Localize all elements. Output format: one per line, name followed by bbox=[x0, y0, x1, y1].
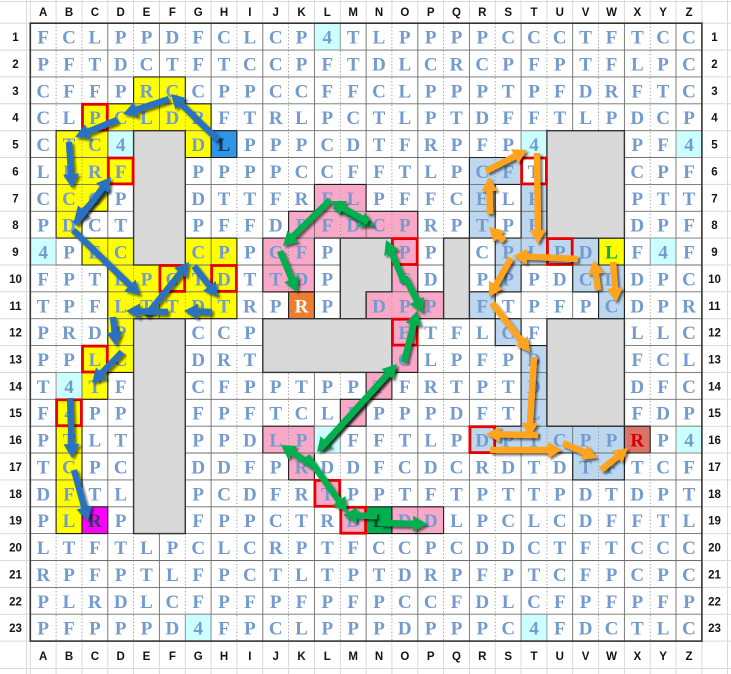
svg-text:P: P bbox=[37, 216, 49, 237]
svg-text:D: D bbox=[630, 108, 644, 129]
svg-text:P: P bbox=[244, 243, 256, 264]
svg-text:T: T bbox=[398, 484, 411, 505]
svg-text:D: D bbox=[269, 216, 283, 237]
svg-text:C: C bbox=[605, 619, 619, 640]
svg-text:F: F bbox=[657, 135, 669, 156]
svg-text:P: P bbox=[502, 216, 514, 237]
svg-text:1: 1 bbox=[12, 32, 19, 44]
svg-text:F: F bbox=[192, 404, 204, 425]
svg-text:L: L bbox=[502, 592, 515, 613]
svg-text:P: P bbox=[373, 404, 385, 425]
svg-text:F: F bbox=[218, 619, 230, 640]
svg-text:L: L bbox=[631, 323, 644, 344]
svg-text:T: T bbox=[114, 538, 127, 559]
svg-text:T: T bbox=[502, 404, 515, 425]
svg-text:C: C bbox=[656, 458, 670, 479]
svg-text:N: N bbox=[375, 7, 383, 19]
svg-text:4: 4 bbox=[684, 135, 694, 156]
svg-text:T: T bbox=[114, 216, 127, 237]
svg-text:J: J bbox=[272, 651, 278, 663]
svg-text:P: P bbox=[115, 189, 127, 210]
svg-text:T: T bbox=[166, 296, 179, 317]
svg-text:F: F bbox=[218, 377, 230, 398]
svg-text:T: T bbox=[89, 269, 102, 290]
svg-text:D: D bbox=[166, 28, 180, 49]
svg-text:R: R bbox=[424, 216, 438, 237]
svg-text:L: L bbox=[295, 108, 308, 129]
svg-text:C: C bbox=[527, 538, 541, 559]
svg-text:P: P bbox=[63, 269, 75, 290]
svg-text:L: L bbox=[398, 81, 411, 102]
svg-text:D: D bbox=[630, 377, 644, 398]
svg-text:F: F bbox=[502, 108, 514, 129]
svg-text:D: D bbox=[656, 404, 670, 425]
svg-text:P: P bbox=[631, 189, 643, 210]
svg-text:5: 5 bbox=[711, 140, 718, 152]
svg-text:P: P bbox=[115, 565, 127, 586]
svg-text:10: 10 bbox=[9, 274, 22, 286]
svg-text:F: F bbox=[89, 538, 101, 559]
svg-text:T: T bbox=[244, 350, 257, 371]
svg-text:D: D bbox=[88, 323, 102, 344]
svg-text:H: H bbox=[220, 7, 228, 19]
svg-text:L: L bbox=[398, 55, 411, 76]
svg-text:L: L bbox=[424, 350, 437, 371]
svg-text:A: A bbox=[39, 651, 47, 663]
svg-text:P: P bbox=[321, 619, 333, 640]
svg-text:P: P bbox=[427, 7, 435, 19]
svg-text:T: T bbox=[502, 377, 515, 398]
svg-text:F: F bbox=[192, 592, 204, 613]
svg-text:Q: Q bbox=[452, 7, 461, 19]
svg-text:C: C bbox=[527, 28, 541, 49]
svg-text:C: C bbox=[398, 538, 412, 559]
svg-text:L: L bbox=[324, 7, 331, 19]
svg-text:4: 4 bbox=[12, 113, 19, 125]
svg-text:T: T bbox=[321, 565, 334, 586]
svg-text:P: P bbox=[321, 108, 333, 129]
svg-text:4: 4 bbox=[529, 619, 539, 640]
svg-text:C: C bbox=[166, 592, 180, 613]
svg-text:F: F bbox=[321, 216, 333, 237]
svg-text:F: F bbox=[373, 162, 385, 183]
svg-text:P: P bbox=[657, 162, 669, 183]
svg-text:P: P bbox=[606, 108, 618, 129]
svg-text:P: P bbox=[270, 458, 282, 479]
svg-text:16: 16 bbox=[9, 435, 22, 447]
svg-text:Z: Z bbox=[685, 7, 692, 19]
svg-text:F: F bbox=[399, 135, 411, 156]
svg-text:F: F bbox=[347, 162, 359, 183]
svg-text:4: 4 bbox=[529, 135, 539, 156]
svg-text:C: C bbox=[682, 323, 696, 344]
svg-text:R: R bbox=[295, 484, 309, 505]
svg-text:P: P bbox=[554, 55, 566, 76]
svg-text:P: P bbox=[683, 108, 695, 129]
svg-text:P: P bbox=[373, 592, 385, 613]
svg-text:T: T bbox=[605, 484, 618, 505]
svg-text:C: C bbox=[91, 7, 99, 19]
svg-text:L: L bbox=[605, 243, 618, 264]
svg-text:D: D bbox=[579, 619, 593, 640]
svg-text:T: T bbox=[218, 189, 231, 210]
svg-text:P: P bbox=[399, 216, 411, 237]
svg-text:L: L bbox=[450, 511, 463, 532]
svg-text:15: 15 bbox=[708, 408, 721, 420]
svg-text:T: T bbox=[373, 135, 386, 156]
svg-text:P: P bbox=[270, 162, 282, 183]
svg-text:L: L bbox=[657, 323, 670, 344]
svg-text:P: P bbox=[451, 216, 463, 237]
svg-text:F: F bbox=[451, 323, 463, 344]
svg-text:P: P bbox=[425, 538, 437, 559]
svg-text:V: V bbox=[582, 651, 590, 663]
svg-text:P: P bbox=[451, 350, 463, 371]
svg-text:F: F bbox=[425, 189, 437, 210]
svg-text:L: L bbox=[114, 296, 127, 317]
svg-text:S: S bbox=[504, 651, 512, 663]
svg-text:C: C bbox=[682, 619, 696, 640]
svg-text:L: L bbox=[321, 404, 334, 425]
svg-text:P: P bbox=[218, 431, 230, 452]
svg-text:C: C bbox=[475, 55, 489, 76]
svg-text:P: P bbox=[451, 565, 463, 586]
svg-text:D: D bbox=[475, 538, 489, 559]
svg-text:D: D bbox=[424, 458, 438, 479]
svg-text:F: F bbox=[37, 404, 49, 425]
svg-text:T: T bbox=[321, 538, 334, 559]
svg-text:P: P bbox=[425, 296, 437, 317]
svg-text:P: P bbox=[476, 511, 488, 532]
svg-text:P: P bbox=[63, 243, 75, 264]
svg-text:R: R bbox=[243, 296, 257, 317]
svg-text:P: P bbox=[528, 269, 540, 290]
svg-text:P: P bbox=[141, 269, 153, 290]
svg-text:C: C bbox=[140, 55, 154, 76]
svg-text:F: F bbox=[192, 565, 204, 586]
svg-text:T: T bbox=[63, 538, 76, 559]
svg-text:R: R bbox=[88, 511, 102, 532]
svg-text:F: F bbox=[528, 55, 540, 76]
svg-text:C: C bbox=[553, 511, 567, 532]
svg-text:P: P bbox=[683, 404, 695, 425]
svg-text:R: R bbox=[88, 592, 102, 613]
svg-text:C: C bbox=[656, 538, 670, 559]
svg-text:P: P bbox=[321, 243, 333, 264]
svg-text:T: T bbox=[530, 651, 537, 663]
svg-text:C: C bbox=[320, 135, 334, 156]
svg-text:P: P bbox=[476, 484, 488, 505]
svg-text:F: F bbox=[373, 458, 385, 479]
svg-text:P: P bbox=[192, 162, 204, 183]
svg-text:F: F bbox=[244, 216, 256, 237]
svg-text:L: L bbox=[89, 431, 102, 452]
svg-text:T: T bbox=[424, 323, 437, 344]
svg-text:T: T bbox=[631, 28, 644, 49]
svg-text:F: F bbox=[683, 458, 695, 479]
svg-text:L: L bbox=[424, 162, 437, 183]
svg-text:23: 23 bbox=[708, 623, 721, 635]
svg-text:P: P bbox=[451, 619, 463, 640]
svg-text:D: D bbox=[166, 619, 180, 640]
svg-text:T: T bbox=[579, 28, 592, 49]
svg-text:P: P bbox=[89, 619, 101, 640]
svg-text:17: 17 bbox=[9, 462, 22, 474]
svg-text:P: P bbox=[476, 28, 488, 49]
svg-text:F: F bbox=[169, 7, 176, 19]
svg-text:C: C bbox=[630, 565, 644, 586]
svg-text:P: P bbox=[631, 592, 643, 613]
svg-text:R: R bbox=[605, 81, 619, 102]
svg-text:P: P bbox=[321, 592, 333, 613]
svg-text:F: F bbox=[476, 296, 488, 317]
svg-text:R: R bbox=[88, 162, 102, 183]
svg-text:P: P bbox=[321, 377, 333, 398]
svg-text:D: D bbox=[372, 55, 386, 76]
svg-text:C: C bbox=[372, 538, 386, 559]
svg-text:R: R bbox=[295, 189, 309, 210]
svg-text:C: C bbox=[36, 135, 50, 156]
svg-text:X: X bbox=[633, 651, 641, 663]
svg-text:P: P bbox=[476, 81, 488, 102]
svg-text:C: C bbox=[36, 189, 50, 210]
svg-text:C: C bbox=[191, 243, 205, 264]
svg-text:L: L bbox=[476, 323, 489, 344]
svg-text:P: P bbox=[218, 81, 230, 102]
svg-text:P: P bbox=[192, 216, 204, 237]
svg-text:O: O bbox=[400, 7, 409, 19]
svg-text:C: C bbox=[682, 377, 696, 398]
svg-text:12: 12 bbox=[708, 328, 721, 340]
svg-text:F: F bbox=[606, 511, 618, 532]
svg-text:14: 14 bbox=[708, 381, 721, 393]
svg-text:E: E bbox=[143, 651, 151, 663]
svg-text:T: T bbox=[218, 296, 231, 317]
svg-text:P: P bbox=[451, 81, 463, 102]
svg-text:7: 7 bbox=[12, 193, 18, 205]
svg-text:P: P bbox=[399, 243, 411, 264]
svg-text:C: C bbox=[527, 592, 541, 613]
svg-text:F: F bbox=[218, 216, 230, 237]
svg-text:C: C bbox=[114, 243, 128, 264]
svg-text:P: P bbox=[141, 28, 153, 49]
svg-text:F: F bbox=[528, 323, 540, 344]
svg-text:D: D bbox=[501, 458, 515, 479]
svg-text:P: P bbox=[63, 350, 75, 371]
svg-text:F: F bbox=[347, 81, 359, 102]
svg-text:C: C bbox=[217, 323, 231, 344]
svg-text:P: P bbox=[451, 28, 463, 49]
svg-text:L: L bbox=[89, 350, 102, 371]
svg-text:P: P bbox=[89, 458, 101, 479]
svg-text:L: L bbox=[683, 350, 696, 371]
svg-text:C: C bbox=[36, 81, 50, 102]
svg-text:P: P bbox=[37, 323, 49, 344]
svg-text:19: 19 bbox=[708, 516, 721, 528]
svg-text:F: F bbox=[683, 243, 695, 264]
svg-text:U: U bbox=[556, 7, 564, 19]
svg-text:P: P bbox=[244, 511, 256, 532]
svg-text:9: 9 bbox=[12, 247, 18, 259]
svg-text:F: F bbox=[580, 565, 592, 586]
svg-text:F: F bbox=[476, 404, 488, 425]
svg-text:L: L bbox=[244, 28, 257, 49]
svg-text:P: P bbox=[218, 243, 230, 264]
svg-text:L: L bbox=[166, 565, 179, 586]
svg-text:B: B bbox=[65, 7, 73, 19]
svg-text:P: P bbox=[296, 135, 308, 156]
svg-text:D: D bbox=[630, 269, 644, 290]
svg-text:C: C bbox=[269, 511, 283, 532]
svg-text:P: P bbox=[502, 55, 514, 76]
svg-text:4: 4 bbox=[658, 243, 668, 264]
svg-text:Y: Y bbox=[659, 7, 667, 19]
svg-text:P: P bbox=[476, 377, 488, 398]
svg-text:P: P bbox=[476, 269, 488, 290]
svg-text:T: T bbox=[37, 377, 50, 398]
svg-text:7: 7 bbox=[711, 193, 717, 205]
svg-text:D: D bbox=[217, 269, 231, 290]
svg-text:D: D bbox=[114, 592, 128, 613]
svg-text:D: D bbox=[424, 511, 438, 532]
svg-text:21: 21 bbox=[9, 569, 22, 581]
svg-text:T: T bbox=[683, 484, 696, 505]
svg-text:C: C bbox=[424, 592, 438, 613]
svg-text:P: P bbox=[554, 484, 566, 505]
svg-text:P: P bbox=[657, 216, 669, 237]
svg-text:4: 4 bbox=[38, 243, 48, 264]
svg-text:P: P bbox=[244, 81, 256, 102]
svg-text:F: F bbox=[63, 619, 75, 640]
svg-text:F: F bbox=[192, 511, 204, 532]
svg-text:T: T bbox=[269, 269, 282, 290]
svg-text:T: T bbox=[502, 484, 515, 505]
svg-text:P: P bbox=[37, 350, 49, 371]
svg-text:L: L bbox=[657, 619, 670, 640]
svg-text:P: P bbox=[502, 350, 514, 371]
svg-text:P: P bbox=[296, 431, 308, 452]
svg-text:T: T bbox=[683, 189, 696, 210]
svg-text:3: 3 bbox=[711, 86, 717, 98]
svg-text:C: C bbox=[682, 55, 696, 76]
svg-text:D: D bbox=[553, 269, 567, 290]
svg-text:T: T bbox=[553, 538, 566, 559]
svg-text:C: C bbox=[269, 55, 283, 76]
svg-text:C: C bbox=[243, 538, 257, 559]
svg-text:F: F bbox=[631, 511, 643, 532]
svg-text:F: F bbox=[347, 431, 359, 452]
svg-text:C: C bbox=[36, 108, 50, 129]
svg-text:F: F bbox=[399, 377, 411, 398]
svg-text:21: 21 bbox=[708, 569, 721, 581]
svg-text:W: W bbox=[606, 651, 617, 663]
svg-text:6: 6 bbox=[12, 167, 18, 179]
svg-text:P: P bbox=[580, 592, 592, 613]
svg-text:F: F bbox=[554, 619, 566, 640]
svg-text:P: P bbox=[528, 296, 540, 317]
svg-text:T: T bbox=[89, 484, 102, 505]
svg-text:P: P bbox=[115, 81, 127, 102]
svg-text:P: P bbox=[296, 538, 308, 559]
svg-text:T: T bbox=[244, 108, 257, 129]
svg-text:C: C bbox=[88, 216, 102, 237]
svg-text:P: P bbox=[270, 296, 282, 317]
svg-text:P: P bbox=[270, 135, 282, 156]
svg-text:R: R bbox=[630, 431, 644, 452]
svg-text:L: L bbox=[631, 55, 644, 76]
svg-text:P: P bbox=[270, 592, 282, 613]
svg-text:R: R bbox=[269, 108, 283, 129]
svg-text:5: 5 bbox=[12, 140, 19, 152]
svg-text:4: 4 bbox=[64, 377, 74, 398]
svg-text:P: P bbox=[580, 296, 592, 317]
svg-text:H: H bbox=[220, 651, 228, 663]
svg-text:C: C bbox=[398, 458, 412, 479]
svg-text:D: D bbox=[346, 135, 360, 156]
svg-text:P: P bbox=[244, 323, 256, 344]
svg-text:T: T bbox=[269, 404, 282, 425]
svg-text:R: R bbox=[140, 81, 154, 102]
svg-text:C: C bbox=[501, 511, 515, 532]
svg-text:V: V bbox=[582, 7, 590, 19]
svg-text:C: C bbox=[295, 162, 309, 183]
svg-text:P: P bbox=[373, 619, 385, 640]
svg-text:L: L bbox=[140, 538, 153, 559]
svg-text:G: G bbox=[194, 7, 203, 19]
svg-text:T: T bbox=[166, 55, 179, 76]
svg-text:D: D bbox=[398, 619, 412, 640]
svg-text:C: C bbox=[62, 189, 76, 210]
svg-text:F: F bbox=[554, 81, 566, 102]
svg-text:18: 18 bbox=[708, 489, 721, 501]
svg-text:P: P bbox=[321, 296, 333, 317]
svg-text:T: T bbox=[476, 216, 489, 237]
svg-text:T: T bbox=[657, 189, 670, 210]
svg-text:L: L bbox=[140, 108, 153, 129]
svg-text:P: P bbox=[425, 108, 437, 129]
svg-text:P: P bbox=[606, 565, 618, 586]
svg-text:C: C bbox=[243, 55, 257, 76]
svg-text:4: 4 bbox=[116, 135, 126, 156]
svg-text:P: P bbox=[296, 28, 308, 49]
svg-text:P: P bbox=[270, 377, 282, 398]
svg-text:D: D bbox=[630, 216, 644, 237]
svg-text:C: C bbox=[191, 323, 205, 344]
svg-text:T: T bbox=[244, 189, 257, 210]
svg-text:F: F bbox=[115, 162, 127, 183]
svg-text:F: F bbox=[115, 377, 127, 398]
svg-text:D: D bbox=[217, 458, 231, 479]
svg-text:F: F bbox=[657, 377, 669, 398]
svg-text:F: F bbox=[37, 28, 49, 49]
svg-text:P: P bbox=[244, 135, 256, 156]
svg-text:L: L bbox=[89, 28, 102, 49]
svg-text:T: T bbox=[450, 377, 463, 398]
svg-text:R: R bbox=[62, 323, 76, 344]
svg-text:B: B bbox=[65, 651, 73, 663]
svg-text:4: 4 bbox=[323, 28, 333, 49]
svg-text:Z: Z bbox=[685, 651, 692, 663]
svg-text:D: D bbox=[475, 108, 489, 129]
svg-text:T: T bbox=[450, 108, 463, 129]
svg-text:L: L bbox=[528, 511, 541, 532]
svg-text:F: F bbox=[270, 189, 282, 210]
svg-text:I: I bbox=[248, 7, 251, 19]
svg-text:P: P bbox=[425, 28, 437, 49]
svg-text:8: 8 bbox=[12, 220, 19, 232]
svg-text:6: 6 bbox=[711, 167, 717, 179]
svg-text:L: L bbox=[295, 619, 308, 640]
